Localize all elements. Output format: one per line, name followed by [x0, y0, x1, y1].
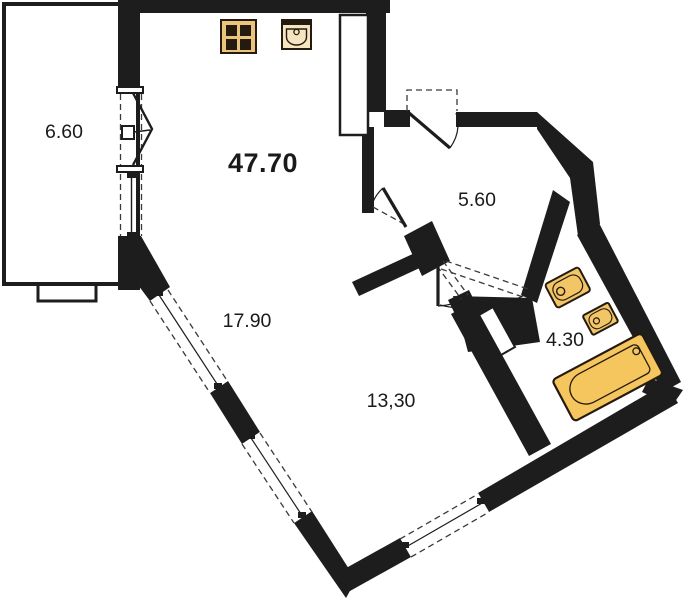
balcony-structure [4, 4, 138, 301]
window-southwest-2 [242, 432, 312, 523]
washbasin-icon [545, 267, 591, 309]
door-handle [122, 126, 134, 139]
room-label-bedroom: 13,30 [367, 390, 416, 412]
floor-plan-page: 6.60 47.70 5.60 17.90 13,30 4.30 [0, 0, 685, 600]
balcony-ledge [38, 284, 96, 301]
walls [118, 0, 683, 598]
entrance-door [407, 90, 458, 148]
room-label-hallway: 5.60 [458, 189, 496, 211]
small-basin-icon [582, 302, 618, 335]
balcony-folding-door [117, 87, 152, 239]
room-label-kitchen-living: 47.70 [228, 148, 298, 178]
window-southeast [400, 493, 489, 557]
room-label-living-area: 17.90 [223, 310, 272, 332]
kitchen-sink-icon [282, 20, 311, 49]
vent-shaft [340, 15, 368, 135]
room-label-bathroom: 4.30 [546, 329, 584, 351]
stove-icon [221, 20, 256, 53]
living-to-hall-door [371, 188, 406, 227]
window-southwest-1 [150, 289, 228, 393]
room-label-balcony: 6.60 [45, 121, 83, 143]
floor-plan: 6.60 47.70 5.60 17.90 13,30 4.30 [0, 0, 685, 600]
